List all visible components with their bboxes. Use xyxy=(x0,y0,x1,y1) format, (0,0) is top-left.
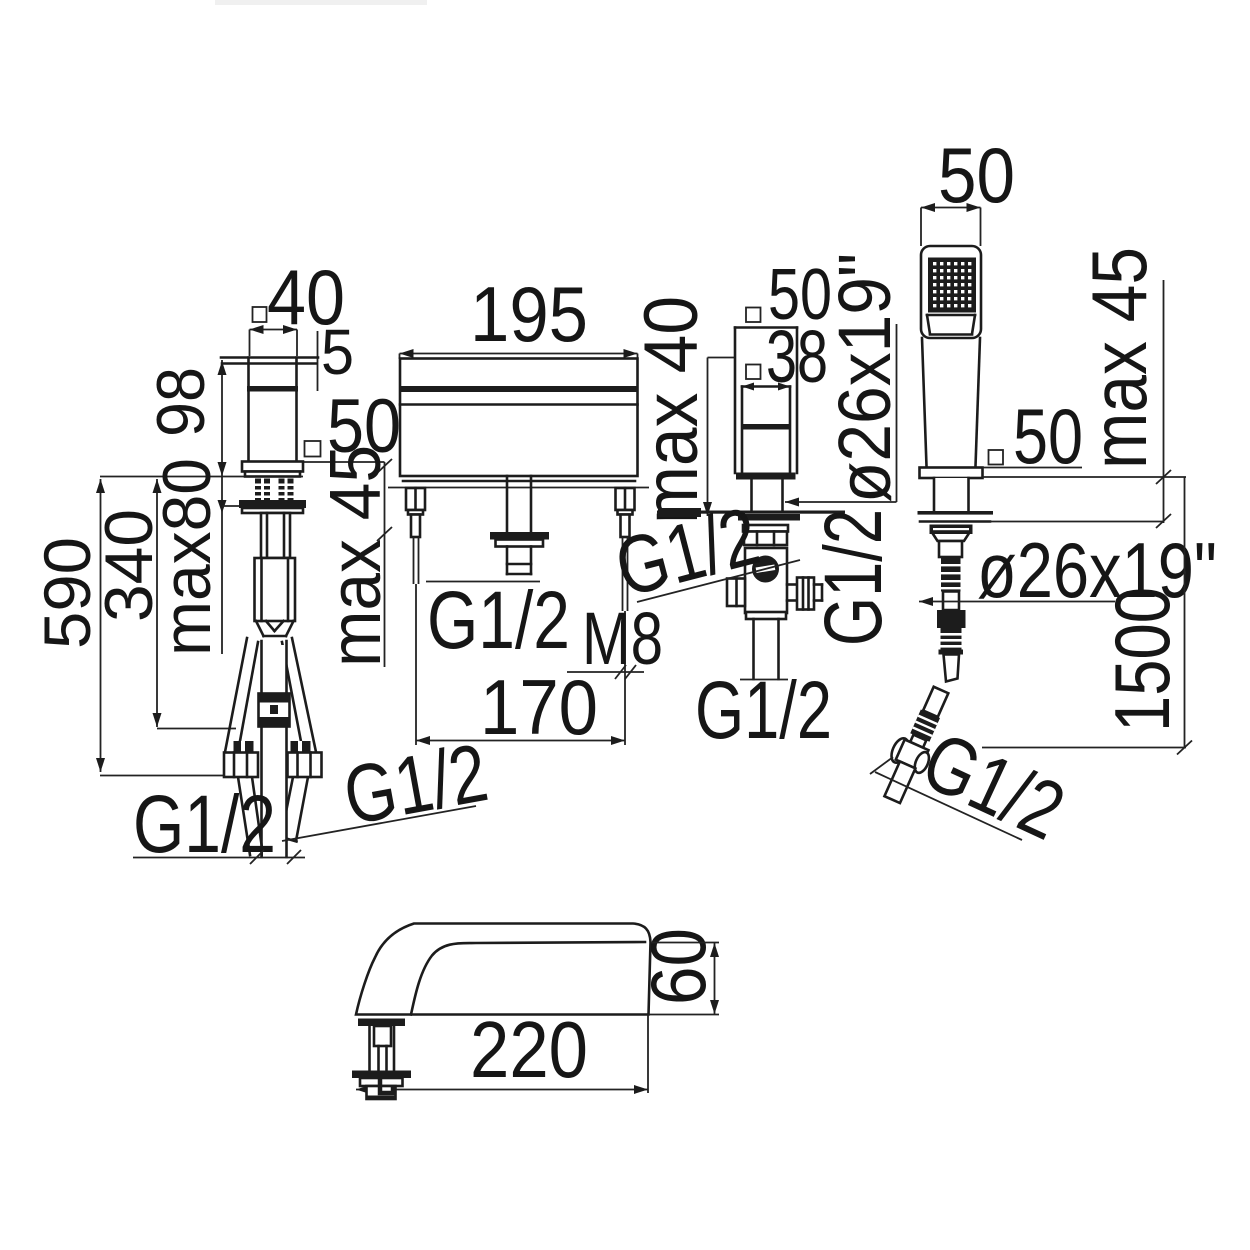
svg-text:max80: max80 xyxy=(149,458,225,656)
svg-text:max 40: max 40 xyxy=(629,296,714,524)
svg-text:50: 50 xyxy=(327,384,401,469)
svg-text:170: 170 xyxy=(480,663,598,751)
svg-text:98: 98 xyxy=(143,367,219,437)
svg-text:G1/2: G1/2 xyxy=(427,575,570,666)
svg-text:max 45: max 45 xyxy=(1075,247,1163,469)
svg-text:195: 195 xyxy=(470,270,588,358)
svg-text:60: 60 xyxy=(634,928,722,1005)
svg-text:ø26x19": ø26x19" xyxy=(823,253,906,503)
svg-text:G1/2: G1/2 xyxy=(133,779,276,870)
svg-text:50: 50 xyxy=(938,131,1015,219)
svg-text:5: 5 xyxy=(321,316,354,388)
svg-text:G1/2: G1/2 xyxy=(808,509,899,646)
svg-text:1500: 1500 xyxy=(1098,587,1186,732)
svg-text:G1/2: G1/2 xyxy=(695,665,832,756)
svg-text:max 45: max 45 xyxy=(316,445,396,667)
svg-text:220: 220 xyxy=(470,1005,588,1094)
